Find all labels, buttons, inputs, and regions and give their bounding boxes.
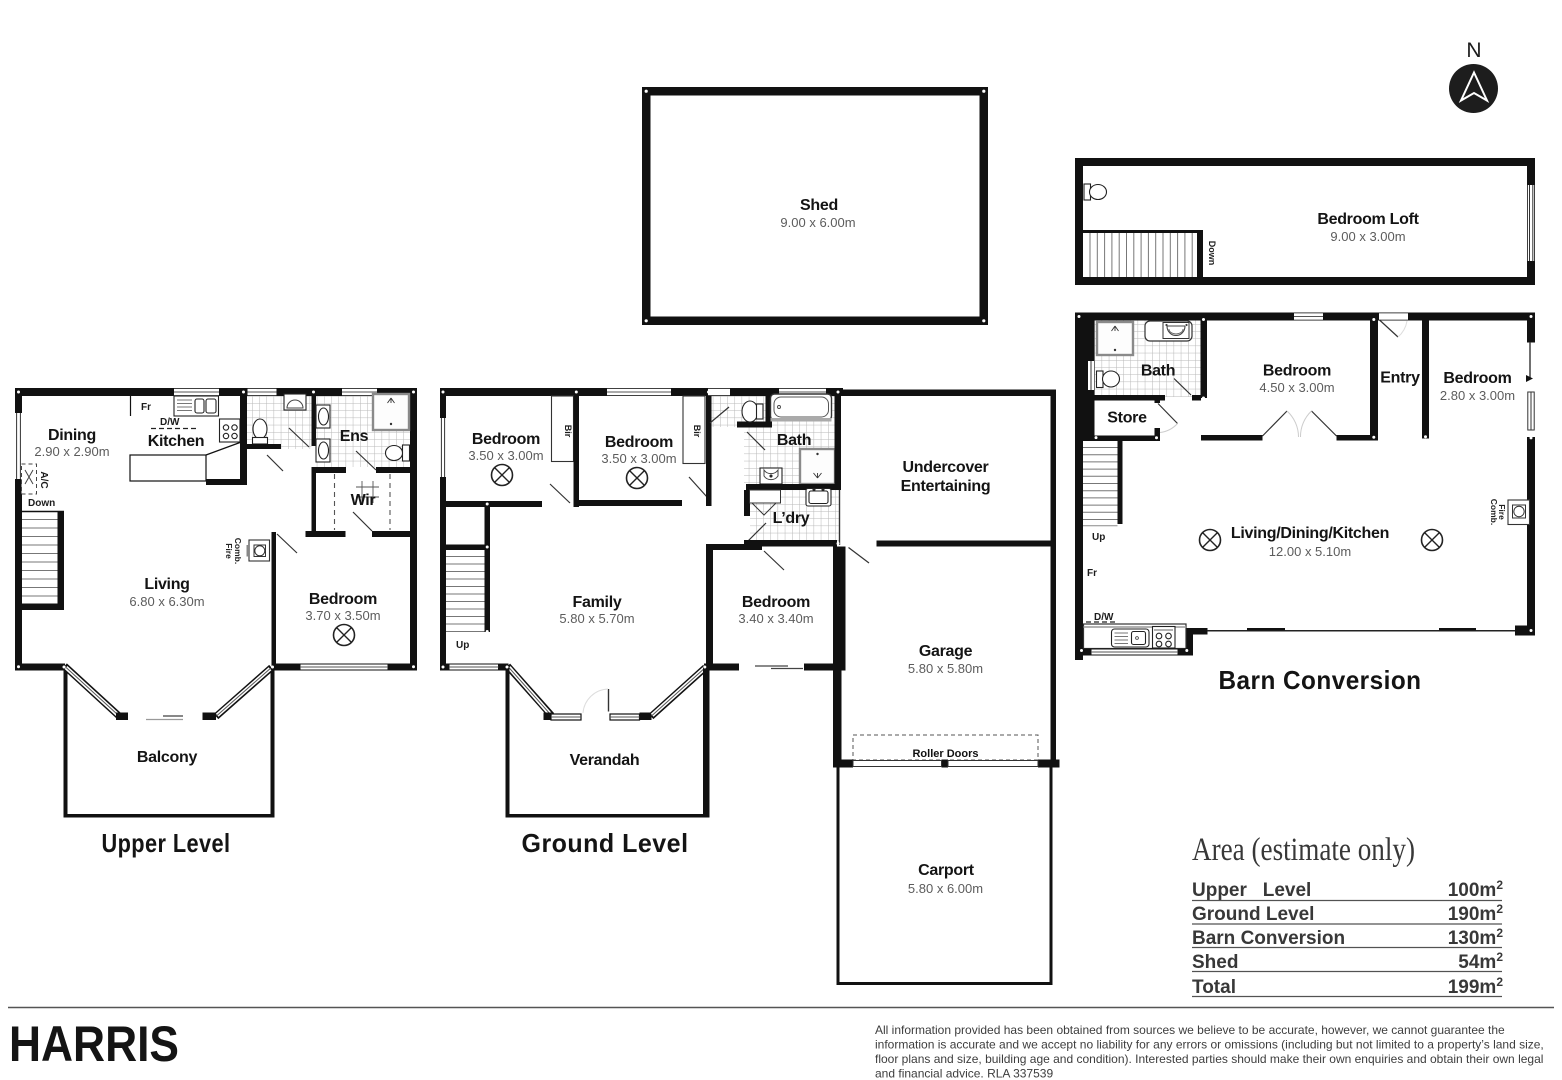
svg-text:Ground Level: Ground Level xyxy=(522,828,689,858)
svg-text:3.40 x 3.40m: 3.40 x 3.40m xyxy=(738,611,813,626)
svg-text:Bir: Bir xyxy=(563,425,573,438)
svg-text:Bedroom: Bedroom xyxy=(472,431,540,448)
svg-text:12.00 x 5.10m: 12.00 x 5.10m xyxy=(1269,544,1351,559)
svg-text:Fr: Fr xyxy=(1087,568,1097,579)
svg-text:Bedroom: Bedroom xyxy=(309,591,377,608)
svg-text:Family: Family xyxy=(573,594,622,611)
svg-text:Bath: Bath xyxy=(1141,363,1175,380)
svg-text:Kitchen: Kitchen xyxy=(148,433,205,450)
svg-text:Carport: Carport xyxy=(918,862,975,879)
svg-text:Garage: Garage xyxy=(919,643,973,660)
svg-text:Living/Dining/Kitchen: Living/Dining/Kitchen xyxy=(1231,525,1389,542)
svg-text:130m2: 130m2 xyxy=(1448,926,1504,949)
svg-text:Shed: Shed xyxy=(800,197,838,214)
svg-text:Dining: Dining xyxy=(48,427,96,444)
svg-text:Fire: Fire xyxy=(224,543,234,559)
svg-text:Comb.: Comb. xyxy=(233,538,243,564)
svg-text:All information provided has b: All information provided has been obtain… xyxy=(875,1023,1505,1037)
svg-text:Verandah: Verandah xyxy=(570,752,640,769)
svg-text:3.70 x 3.50m: 3.70 x 3.50m xyxy=(305,608,380,623)
svg-text:HARRIS: HARRIS xyxy=(9,1016,179,1072)
svg-text:and financial advice. RLA 3375: and financial advice. RLA 337539 xyxy=(875,1067,1053,1080)
svg-text:Bath: Bath xyxy=(777,432,811,449)
svg-text:Down: Down xyxy=(1207,241,1217,266)
svg-text:Upper Level: Upper Level xyxy=(1192,880,1311,901)
svg-text:5.80 x 5.70m: 5.80 x 5.70m xyxy=(559,611,634,626)
svg-text:199m2: 199m2 xyxy=(1448,975,1504,998)
svg-text:Total: Total xyxy=(1192,977,1236,998)
svg-text:9.00 x 3.00m: 9.00 x 3.00m xyxy=(1330,229,1405,244)
svg-text:100m2: 100m2 xyxy=(1448,878,1504,901)
svg-text:Ens: Ens xyxy=(340,428,369,445)
svg-text:6.80 x 6.30m: 6.80 x 6.30m xyxy=(129,594,204,609)
svg-text:floor plans and size, building: floor plans and size, building age and c… xyxy=(875,1052,1543,1066)
svg-text:Fire: Fire xyxy=(1497,504,1507,520)
svg-text:5.80 x 6.00m: 5.80 x 6.00m xyxy=(908,881,983,896)
svg-text:A/C: A/C xyxy=(38,471,49,488)
svg-text:Store: Store xyxy=(1107,410,1147,427)
svg-text:4.50 x 3.00m: 4.50 x 3.00m xyxy=(1259,380,1334,395)
svg-text:Bedroom: Bedroom xyxy=(605,434,673,451)
svg-text:N: N xyxy=(1466,39,1481,62)
svg-text:Entertaining: Entertaining xyxy=(901,478,991,495)
svg-text:Bedroom: Bedroom xyxy=(1443,370,1511,387)
svg-text:Bir: Bir xyxy=(692,425,702,438)
svg-text:L’dry: L’dry xyxy=(773,510,810,527)
svg-text:Up: Up xyxy=(456,640,469,651)
svg-text:Entry: Entry xyxy=(1380,370,1420,387)
svg-text:3.50 x 3.00m: 3.50 x 3.00m xyxy=(468,448,543,463)
svg-text:Bedroom Loft: Bedroom Loft xyxy=(1317,211,1419,228)
svg-text:Bedroom: Bedroom xyxy=(1263,363,1331,380)
svg-text:Barn Conversion: Barn Conversion xyxy=(1219,665,1422,695)
svg-text:190m2: 190m2 xyxy=(1448,902,1504,925)
svg-text:Down: Down xyxy=(28,498,55,509)
svg-text:information is accurate and we: information is accurate and we accept no… xyxy=(875,1038,1544,1052)
svg-text:Wir: Wir xyxy=(351,492,376,509)
svg-text:5.80 x 5.80m: 5.80 x 5.80m xyxy=(908,661,983,676)
svg-text:D/W: D/W xyxy=(1094,612,1114,623)
svg-text:2.80 x 3.00m: 2.80 x 3.00m xyxy=(1440,388,1515,403)
svg-text:3.50 x 3.00m: 3.50 x 3.00m xyxy=(601,451,676,466)
svg-text:Undercover: Undercover xyxy=(903,459,989,476)
svg-text:Balcony: Balcony xyxy=(137,749,198,766)
svg-text:Fr: Fr xyxy=(141,402,151,413)
svg-text:Roller Doors: Roller Doors xyxy=(912,748,978,760)
svg-text:Area (estimate only): Area (estimate only) xyxy=(1192,832,1415,868)
svg-text:Bedroom: Bedroom xyxy=(742,594,810,611)
svg-text:Living: Living xyxy=(144,576,189,593)
svg-text:Shed: Shed xyxy=(1192,952,1238,973)
svg-text:2.90 x 2.90m: 2.90 x 2.90m xyxy=(34,444,109,459)
svg-text:Barn Conversion: Barn Conversion xyxy=(1192,928,1345,949)
svg-text:Up: Up xyxy=(1092,532,1105,543)
svg-text:9.00 x 6.00m: 9.00 x 6.00m xyxy=(780,215,855,230)
svg-text:Upper Level: Upper Level xyxy=(102,828,231,858)
svg-text:D/W: D/W xyxy=(160,417,180,428)
svg-text:Ground Level: Ground Level xyxy=(1192,904,1314,925)
